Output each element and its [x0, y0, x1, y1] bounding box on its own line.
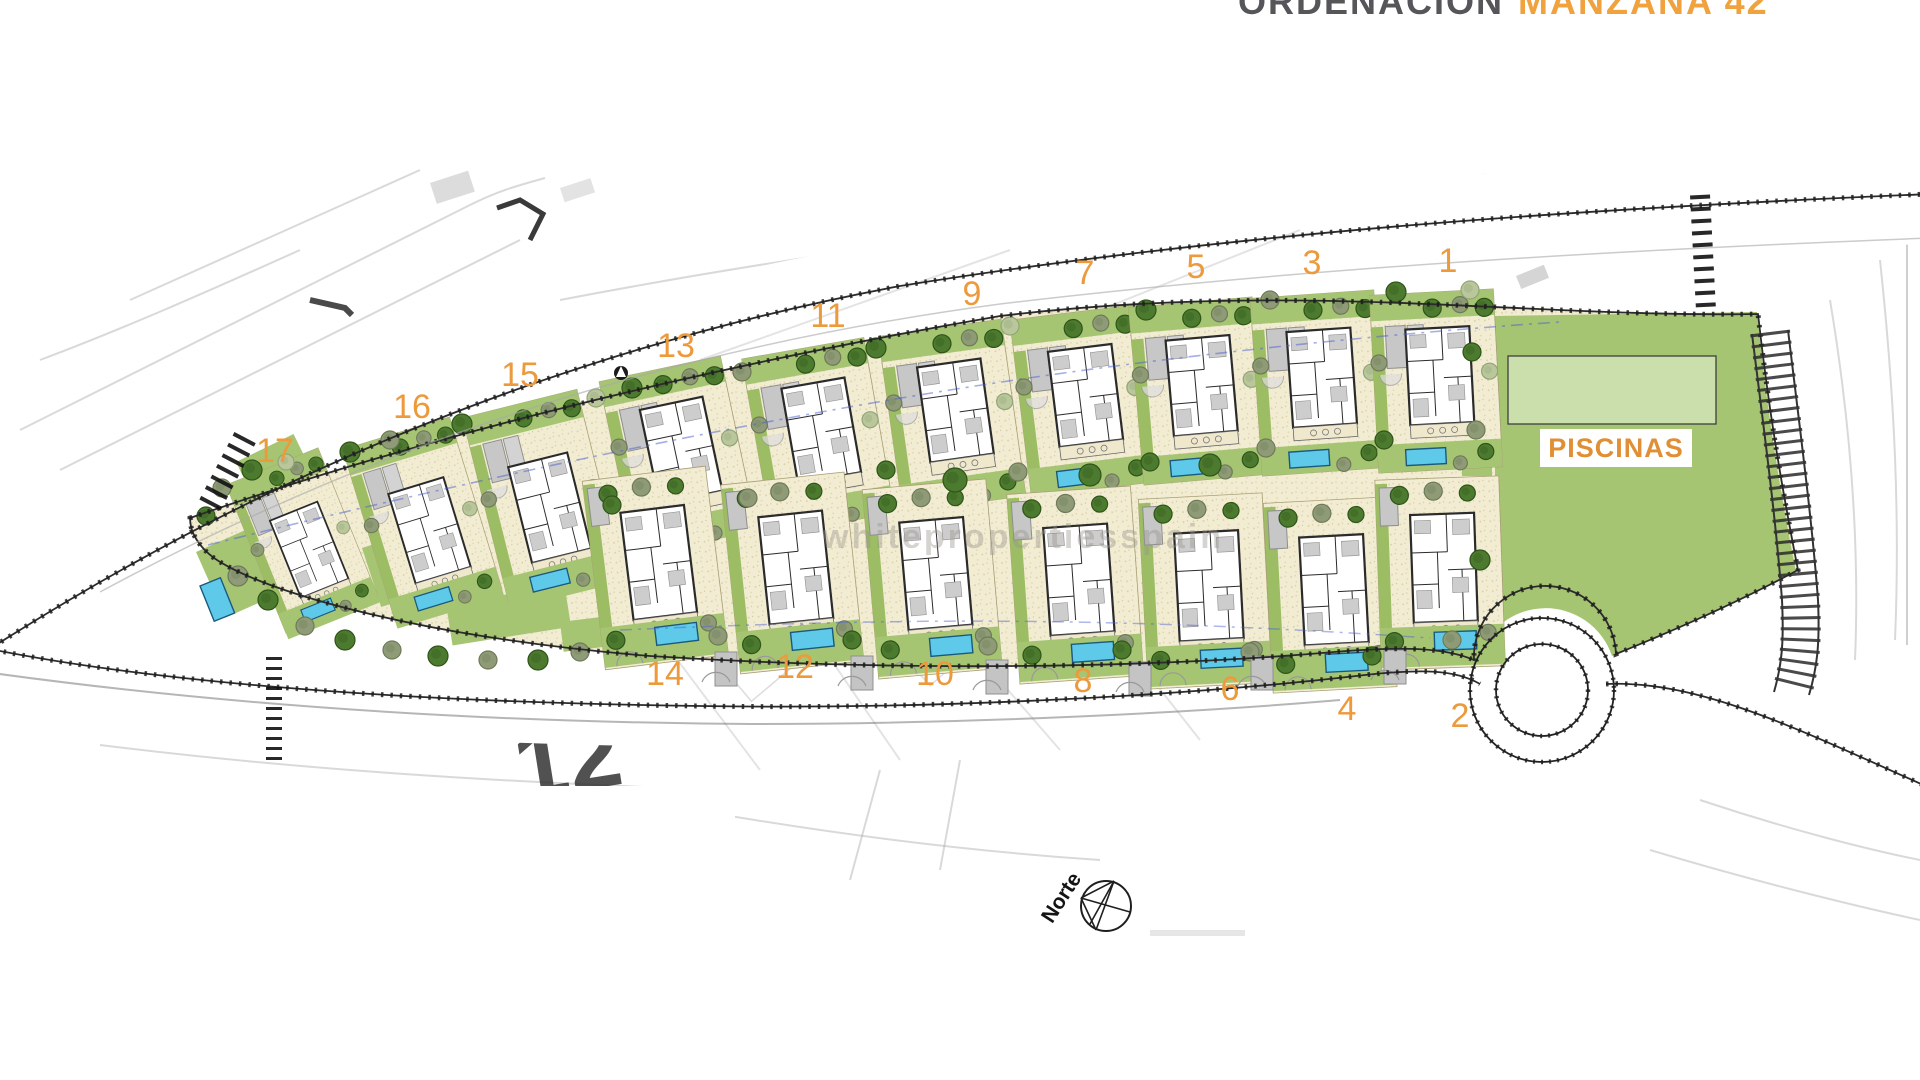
page-title: ORDENACIÓNMANZANA 42: [1238, 0, 1769, 22]
villa-plot-2: [1375, 476, 1506, 670]
tree-texture: [712, 630, 721, 639]
title-prefix: ORDENACIÓN: [1238, 0, 1504, 22]
tree-texture: [1012, 466, 1021, 475]
house-plan: [1048, 344, 1125, 460]
driveway-stub: [1384, 650, 1406, 684]
contour-line: [130, 170, 420, 300]
furniture: [770, 591, 787, 610]
furniture: [1307, 612, 1323, 631]
tree-texture: [846, 634, 855, 643]
tree-texture: [880, 464, 889, 473]
pool: [1406, 448, 1447, 466]
furniture: [668, 570, 686, 587]
tree-texture: [482, 654, 491, 663]
house-plan: [620, 505, 698, 633]
furniture: [1090, 351, 1109, 368]
tree-texture: [1464, 284, 1473, 293]
driveway-stub: [1129, 662, 1151, 696]
furniture: [965, 417, 983, 434]
communal-pool: [1508, 356, 1716, 424]
furniture: [1182, 608, 1198, 627]
furniture: [1341, 540, 1359, 556]
watermark-text: whitepropertiesspain: [822, 518, 1224, 557]
tree-texture: [343, 445, 353, 455]
tree-texture: [1378, 434, 1387, 443]
furniture: [805, 575, 822, 592]
background-building: [560, 178, 595, 202]
furniture: [801, 517, 819, 534]
furniture: [1448, 332, 1466, 348]
house-plan: [917, 358, 996, 475]
house-plan: [1410, 513, 1478, 636]
background-building: [1516, 265, 1549, 289]
plot-number-8: 8: [1074, 662, 1093, 700]
compass-circle: [1081, 881, 1131, 931]
furniture: [931, 434, 948, 454]
driveway: [1385, 326, 1407, 369]
pool: [929, 635, 972, 657]
furniture: [831, 436, 849, 454]
tree-texture: [625, 381, 635, 391]
furniture: [786, 391, 804, 407]
furniture: [1452, 577, 1469, 593]
furniture: [922, 371, 940, 386]
plot-number-1: 1: [1439, 242, 1458, 280]
tree-texture: [261, 593, 271, 603]
furniture: [1060, 419, 1077, 439]
plot-number-7: 7: [1076, 254, 1095, 292]
site-plan-page: 121716151311975311412108642 ORDENACIÓNMA…: [0, 0, 1920, 1080]
driveway-stub: [851, 656, 873, 690]
house-plan: [1166, 335, 1239, 449]
furniture: [797, 454, 815, 474]
contour-line: [1650, 850, 1920, 920]
furniture: [1052, 603, 1068, 622]
plot-number-3: 3: [1303, 244, 1322, 282]
tree-texture: [338, 633, 348, 643]
villa-plot-14: [582, 466, 728, 670]
furniture: [910, 597, 927, 616]
plot-number-4: 4: [1338, 690, 1357, 728]
contour-mark: [497, 200, 543, 240]
furniture: [1452, 519, 1470, 535]
tree-texture: [1260, 442, 1269, 451]
furniture: [1208, 341, 1226, 357]
contour-line: [1830, 300, 1856, 660]
plot-number-17: 17: [256, 432, 294, 470]
furniture: [1088, 588, 1105, 604]
pool: [1325, 652, 1368, 672]
contour-line: [1880, 260, 1897, 640]
plot-number-14: 14: [646, 655, 684, 693]
furniture: [1448, 385, 1465, 401]
tree-texture: [1144, 456, 1153, 465]
furniture: [1295, 401, 1311, 420]
furniture: [663, 512, 682, 529]
tree-texture: [1446, 634, 1455, 643]
furniture: [959, 365, 978, 382]
plan-fade-mask: [395, 786, 735, 886]
furniture: [1217, 595, 1234, 611]
tree-texture: [982, 640, 991, 649]
north-compass: [1081, 881, 1245, 936]
contour-line: [40, 250, 300, 360]
tree-texture: [1004, 320, 1013, 329]
house-plan: [1299, 534, 1369, 658]
tree-texture: [1244, 646, 1253, 655]
background-building: [430, 171, 475, 204]
tree-texture: [245, 463, 255, 473]
tree-texture: [606, 499, 615, 508]
plot-number-10: 10: [916, 655, 954, 693]
title-highlight: MANZANA 42: [1518, 0, 1769, 22]
tree-texture: [299, 620, 308, 629]
tree-texture: [1116, 644, 1125, 653]
driveway-stub: [715, 652, 737, 686]
plot-number-2: 2: [1451, 697, 1470, 735]
tree-texture: [1389, 285, 1399, 295]
lower-road-surface: [1612, 690, 1920, 800]
tree-texture: [947, 472, 959, 484]
furniture: [1053, 355, 1070, 370]
tree-texture: [386, 644, 395, 653]
culdesac-island: [1498, 646, 1586, 734]
tree-texture: [1466, 346, 1475, 355]
furniture: [1303, 542, 1320, 556]
pool: [1071, 641, 1114, 662]
plot-number-9: 9: [963, 275, 982, 313]
plot-number-13: 13: [657, 327, 695, 365]
tree-texture: [1082, 467, 1093, 478]
furniture: [625, 516, 642, 531]
furniture: [945, 582, 962, 598]
tree-texture: [1473, 553, 1483, 563]
plot-number-15: 15: [501, 356, 539, 394]
furniture: [1410, 334, 1427, 348]
house-plan: [1405, 326, 1475, 438]
furniture: [1329, 334, 1347, 350]
plot-number-16: 16: [393, 388, 431, 426]
watermark-smudge: [1150, 930, 1245, 936]
plot-number-5: 5: [1187, 248, 1206, 286]
tree-texture: [431, 649, 441, 659]
tree-texture: [742, 492, 751, 501]
furniture: [1342, 599, 1359, 615]
plot-number-11: 11: [810, 297, 845, 335]
furniture: [634, 586, 651, 606]
tree-texture: [455, 417, 465, 427]
terrace: [1410, 422, 1475, 438]
furniture: [1413, 398, 1429, 417]
pool: [1289, 449, 1330, 468]
contour-line: [850, 770, 880, 880]
tree-texture: [869, 341, 879, 351]
contour-line: [100, 745, 720, 790]
furniture: [1417, 590, 1433, 609]
contour-line: [940, 760, 960, 870]
piscinas-label: PISCINAS: [1540, 429, 1692, 467]
furniture: [1170, 345, 1187, 359]
plot-number-12: 12: [776, 648, 814, 686]
furniture: [1414, 520, 1430, 534]
furniture: [763, 521, 780, 536]
furniture: [1330, 386, 1347, 402]
tree-texture: [531, 653, 541, 663]
furniture: [1210, 394, 1227, 410]
contour-mark: [310, 300, 352, 315]
furniture: [1176, 409, 1193, 428]
furniture: [1095, 403, 1113, 420]
furniture: [824, 384, 843, 402]
furniture: [682, 404, 702, 422]
tree-texture: [1202, 457, 1213, 468]
plot-number-6: 6: [1221, 670, 1240, 708]
tree-texture: [1470, 424, 1479, 433]
